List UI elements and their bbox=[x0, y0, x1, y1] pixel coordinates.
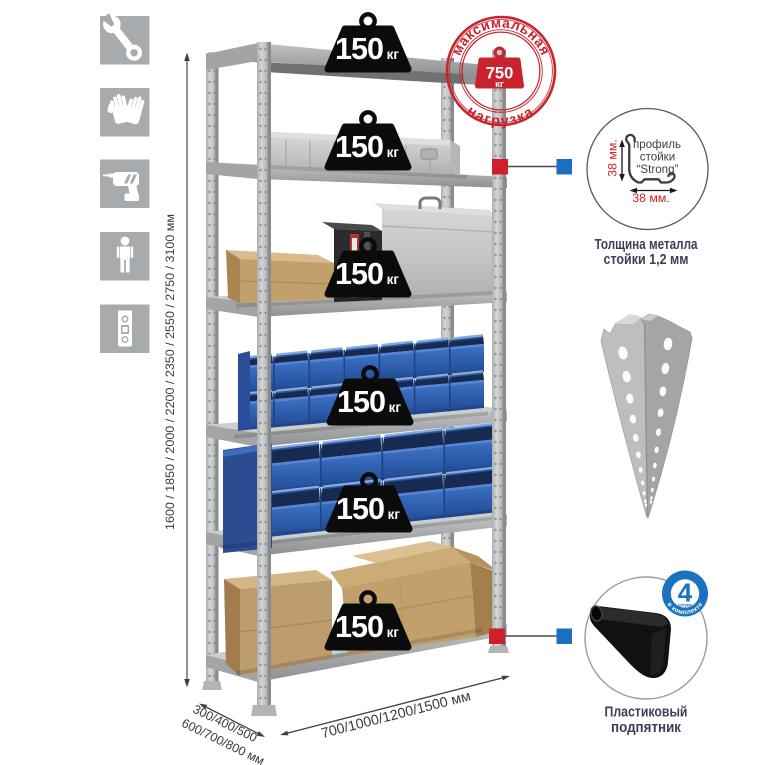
svg-text:150: 150 bbox=[335, 31, 383, 66]
svg-text:150: 150 bbox=[335, 256, 383, 291]
svg-text:150: 150 bbox=[336, 491, 384, 526]
svg-text:стойки: стойки bbox=[640, 151, 675, 164]
svg-text:38 мм.: 38 мм. bbox=[632, 191, 669, 205]
svg-text:Пластиковый: Пластиковый bbox=[605, 705, 688, 721]
svg-text:профиль: профиль bbox=[633, 138, 681, 151]
svg-text:Толщина металла: Толщина металла bbox=[595, 237, 699, 253]
svg-text:стойки 1,2 мм: стойки 1,2 мм bbox=[604, 252, 689, 268]
svg-text:кг: кг bbox=[387, 625, 400, 640]
svg-text:150: 150 bbox=[335, 609, 383, 644]
svg-text:1600 / 1850 / 2000 / 2200 / 23: 1600 / 1850 / 2000 / 2200 / 2350 / 2550 … bbox=[163, 214, 177, 530]
svg-text:подпятник: подпятник bbox=[611, 720, 682, 736]
svg-text:кг: кг bbox=[387, 47, 400, 62]
svg-text:штуки: штуки bbox=[678, 603, 692, 608]
svg-text:150: 150 bbox=[335, 129, 383, 164]
svg-text:кг: кг bbox=[387, 145, 400, 160]
svg-text:кг: кг bbox=[495, 79, 504, 90]
svg-text:кг: кг bbox=[388, 507, 401, 522]
svg-text:150: 150 bbox=[337, 384, 385, 419]
svg-text:38 мм.: 38 мм. bbox=[606, 139, 620, 176]
svg-text:кг: кг bbox=[389, 400, 402, 415]
svg-text:“Strong”: “Strong” bbox=[637, 163, 679, 176]
svg-text:кг: кг bbox=[387, 272, 400, 287]
